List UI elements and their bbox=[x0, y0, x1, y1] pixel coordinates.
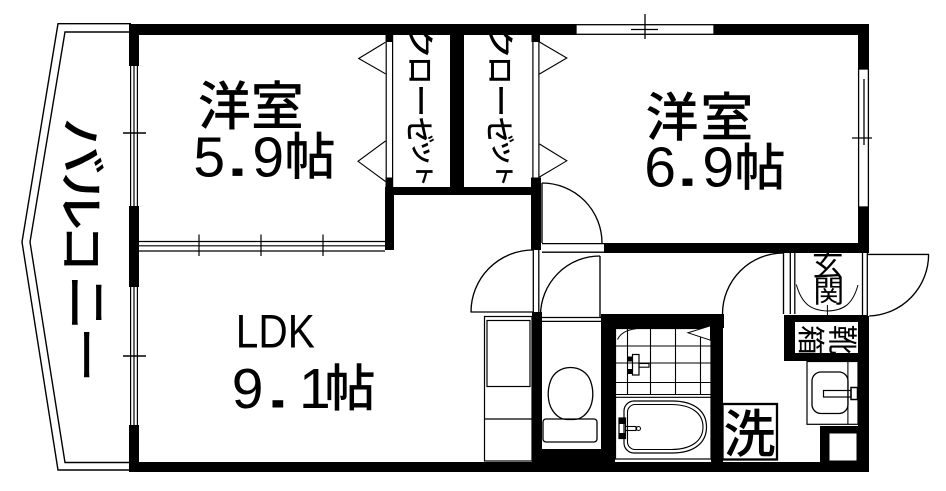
svg-text:5: 5 bbox=[193, 125, 225, 189]
svg-text:6: 6 bbox=[644, 135, 676, 199]
svg-text:9: 9 bbox=[252, 125, 284, 189]
svg-text:LDK: LDK bbox=[236, 304, 315, 357]
svg-text:9: 9 bbox=[702, 135, 734, 199]
svg-text:1: 1 bbox=[299, 357, 331, 421]
svg-text:9: 9 bbox=[232, 357, 264, 421]
